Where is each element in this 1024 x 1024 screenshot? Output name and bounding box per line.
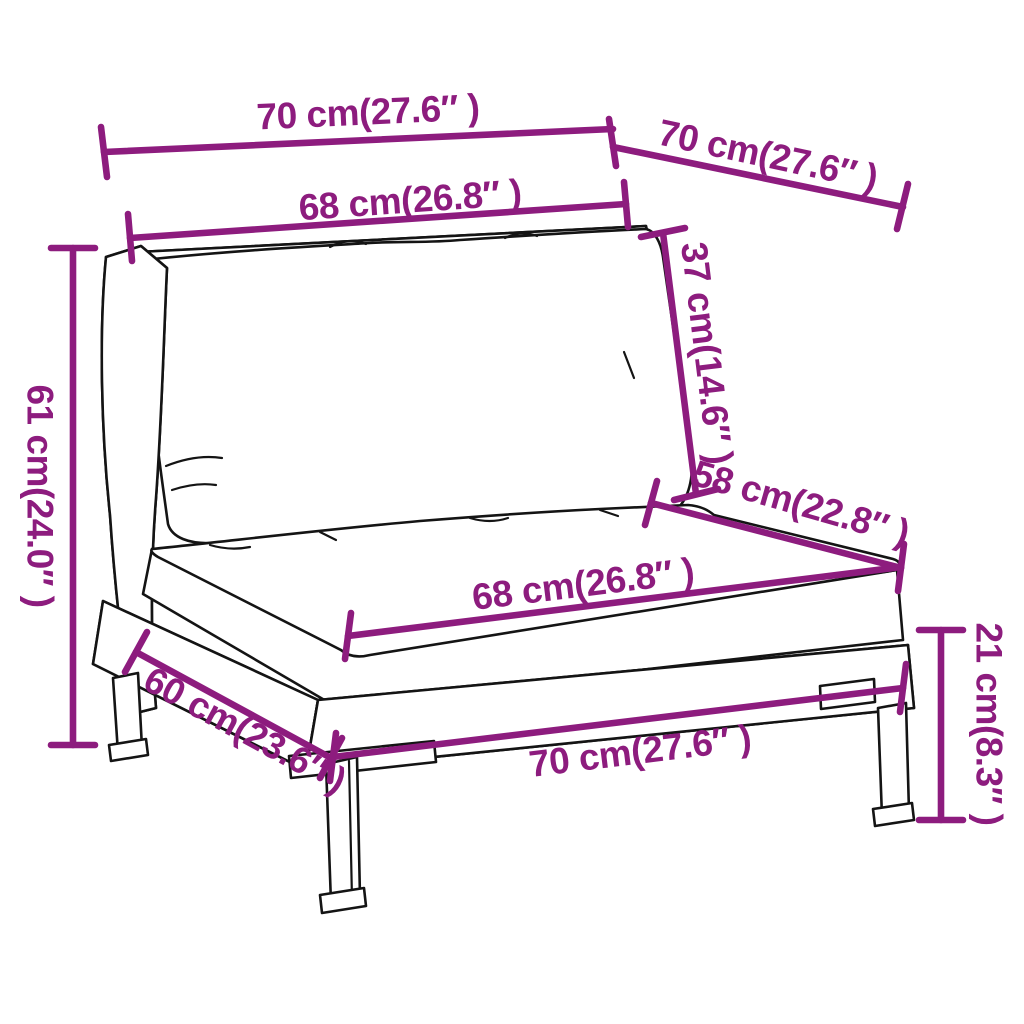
dim-leg-height: 21 cm(8.3″ ) — [919, 623, 1010, 826]
dim-label: 68 cm(26.8″ ) — [297, 172, 522, 228]
dim-label: 21 cm(8.3″ ) — [969, 623, 1010, 826]
dim-label: 70 cm(27.6″ ) — [655, 112, 882, 198]
back-cushion — [151, 229, 692, 547]
dimension-diagram: 70 cm(27.6″ ) 70 cm(27.6″ ) 68 cm(26.8″ … — [0, 0, 1024, 1024]
right-leg — [873, 703, 914, 826]
dim-label: 70 cm(27.6″ ) — [256, 86, 481, 137]
dim-overall-width-top: 70 cm(27.6″ ) — [101, 86, 616, 177]
dim-label: 61 cm(24.0″ ) — [20, 384, 61, 607]
dim-overall-height: 61 cm(24.0″ ) — [20, 248, 96, 745]
sofa-artwork — [93, 226, 914, 913]
dim-overall-depth-top: 70 cm(27.6″ ) — [613, 112, 908, 229]
